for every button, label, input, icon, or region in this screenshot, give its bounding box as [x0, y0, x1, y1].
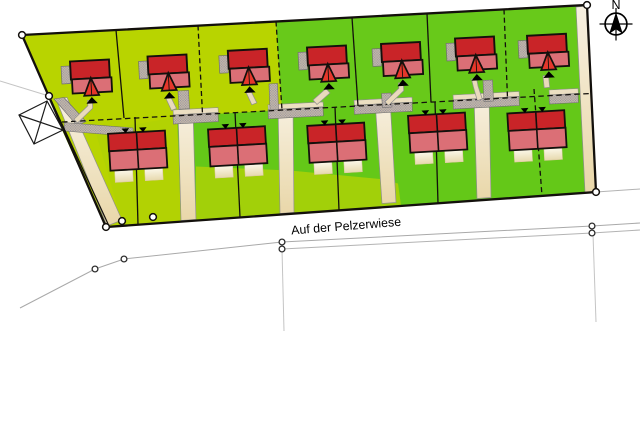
svg-text:N: N — [612, 0, 621, 12]
